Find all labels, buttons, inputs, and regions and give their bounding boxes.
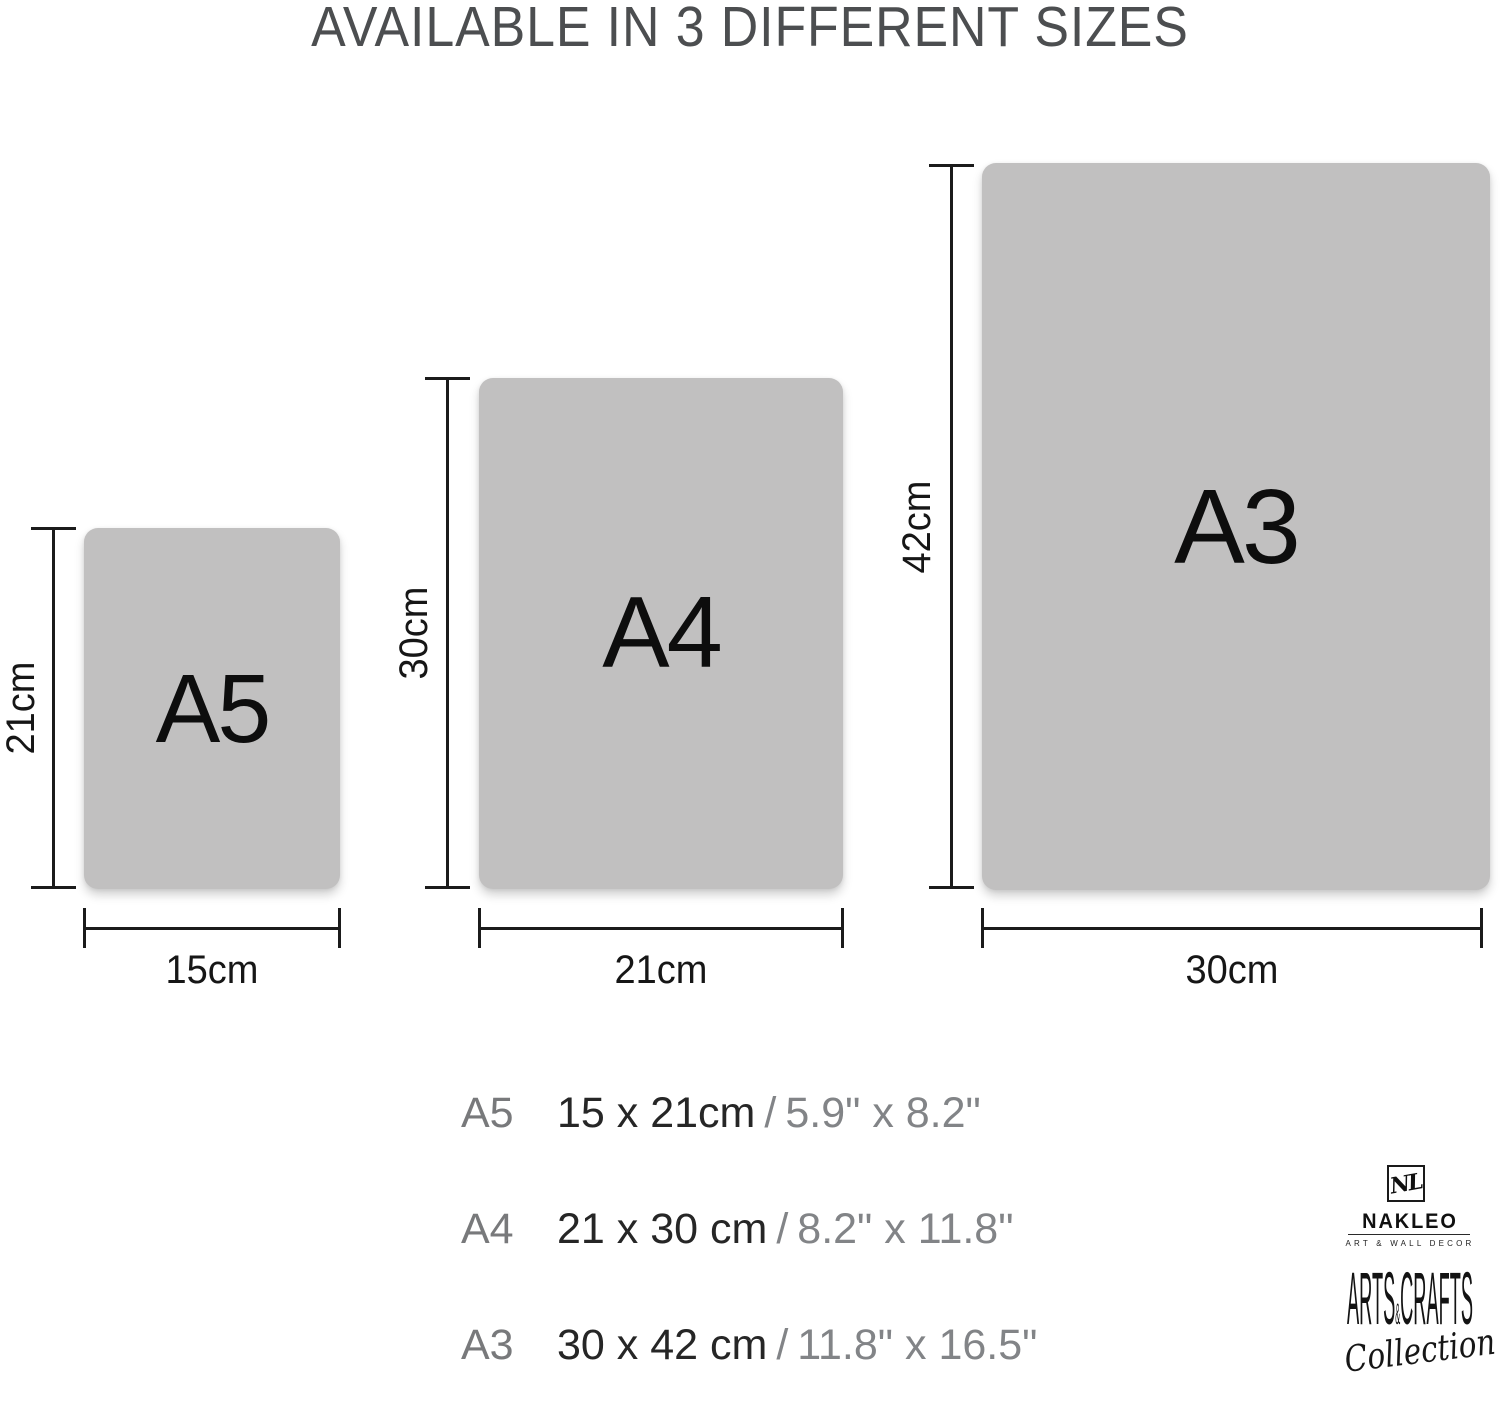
spec-imperial: 11.8" x 16.5" bbox=[797, 1321, 1037, 1369]
spec-size-name: A4 bbox=[461, 1208, 557, 1251]
a3-width-label: 30cm bbox=[1186, 950, 1279, 990]
svg-text:ARTS&CRAFTS: ARTS&CRAFTS bbox=[1347, 1268, 1473, 1330]
a3-width-line-right-tick bbox=[1480, 908, 1483, 948]
a5-width-line-left-tick bbox=[83, 908, 86, 948]
brand-name: NAKLEO bbox=[1334, 1210, 1486, 1234]
spec-metric: 15 x 21cm bbox=[557, 1089, 755, 1137]
a3-height-label: 42cm bbox=[897, 481, 937, 574]
a4-width-line-right-tick bbox=[841, 908, 844, 948]
a3-height-line bbox=[950, 165, 953, 888]
spec-separator: / bbox=[764, 1089, 776, 1137]
a3-sheet: A3 bbox=[982, 163, 1490, 890]
a3-height-line-bottom-tick bbox=[929, 886, 974, 889]
a5-height-line bbox=[52, 528, 55, 888]
spec-metric: 30 x 42 cm bbox=[557, 1321, 767, 1369]
a3-sheet-label: A3 bbox=[1174, 474, 1298, 580]
a5-width-line-right-tick bbox=[338, 908, 341, 948]
spec-row-a3: A330 x 42 cm/11.8" x 16.5" bbox=[461, 1324, 1037, 1367]
a4-width-line-left-tick bbox=[478, 908, 481, 948]
brand-collection-script: Collection bbox=[1342, 1324, 1477, 1381]
a5-width-label: 15cm bbox=[166, 950, 259, 990]
a5-height-line-bottom-tick bbox=[31, 886, 76, 889]
a4-width-line bbox=[479, 927, 843, 930]
spec-separator: / bbox=[776, 1321, 788, 1369]
spec-imperial: 8.2" x 11.8" bbox=[797, 1205, 1013, 1253]
a4-width-label: 21cm bbox=[615, 950, 708, 990]
a5-height-line-top-tick bbox=[31, 527, 76, 530]
a4-height-line-top-tick bbox=[425, 377, 470, 380]
a3-width-line-left-tick bbox=[981, 908, 984, 948]
a5-height-label: 21cm bbox=[1, 662, 41, 755]
spec-size-name: A3 bbox=[461, 1324, 557, 1367]
a3-width-line bbox=[982, 927, 1483, 930]
a4-height-label: 30cm bbox=[394, 587, 434, 680]
a5-sheet-label: A5 bbox=[156, 660, 269, 757]
a4-sheet-label: A4 bbox=[602, 583, 720, 684]
a4-height-line bbox=[446, 378, 449, 888]
page-title: AVAILABLE IN 3 DIFFERENT SIZES bbox=[68, 0, 1433, 60]
a4-height-line-bottom-tick bbox=[425, 886, 470, 889]
brand-monogram: NL bbox=[1389, 1170, 1424, 1197]
spec-metric: 21 x 30 cm bbox=[557, 1205, 767, 1253]
brand-monogram-box: NL bbox=[1387, 1165, 1425, 1202]
a5-width-line bbox=[84, 927, 340, 930]
size-chart-infographic: AVAILABLE IN 3 DIFFERENT SIZES 21cm A5 1… bbox=[0, 0, 1500, 1405]
brand-arts-crafts-logo: ARTS&CRAFTS bbox=[1345, 1268, 1475, 1330]
spec-row-a5: A515 x 21cm/5.9" x 8.2" bbox=[461, 1092, 981, 1135]
brand-tagline: ART & WALL DECOR bbox=[1330, 1239, 1490, 1248]
a3-height-line-top-tick bbox=[929, 164, 974, 167]
brand-divider bbox=[1348, 1234, 1470, 1235]
spec-separator: / bbox=[776, 1205, 788, 1253]
spec-row-a4: A421 x 30 cm/8.2" x 11.8" bbox=[461, 1208, 1013, 1251]
spec-imperial: 5.9" x 8.2" bbox=[785, 1089, 980, 1137]
spec-size-name: A5 bbox=[461, 1092, 557, 1135]
a4-sheet: A4 bbox=[479, 378, 843, 889]
a5-sheet: A5 bbox=[84, 528, 340, 889]
